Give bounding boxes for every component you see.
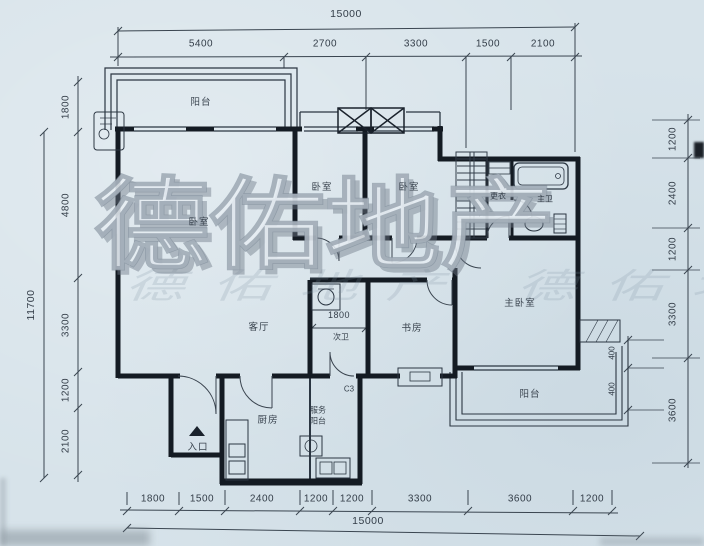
dim-bottom-seg-2: 2400 — [250, 494, 274, 505]
room-label-bedroom-b: 卧室 — [398, 179, 419, 193]
dim-bottom-seg-3: 1200 — [304, 494, 328, 505]
room-label-service-balcony-2: 阳台 — [310, 416, 326, 427]
dim-top-total: 15000 — [330, 8, 362, 20]
dim-bottom-seg-4: 1200 — [340, 494, 364, 505]
room-label-bedroom-a: 卧室 — [311, 179, 332, 193]
labels-layer: 阳台 卧室 卧室 卧室 更衣 主卫 客厅 次卫 书房 主卧室 厨房 服务 阳台 … — [0, 0, 704, 546]
window-code-label: C3 — [344, 385, 354, 394]
dim-right-seg-0: 1200 — [668, 127, 679, 151]
floor-plan-scan: 德佑地产 德佑地产 德佑地产 德佑地产 阳台 卧室 卧室 卧室 更衣 主卫 客厅… — [0, 0, 704, 546]
dim-left-seg-2: 3300 — [61, 313, 72, 337]
room-label-master-bath: 主卫 — [537, 194, 553, 205]
dim-balcony-side-1: 400 — [608, 382, 617, 395]
dim-left-seg-1: 4800 — [61, 193, 72, 217]
dim-top-seg-2: 3300 — [404, 39, 428, 50]
room-label-master-bedroom: 主卧室 — [504, 295, 536, 309]
dim-bottom-seg-0: 1800 — [141, 494, 165, 505]
dim-bottom-seg-6: 3600 — [508, 494, 532, 505]
dim-balcony-side-0: 400 — [608, 346, 617, 359]
dim-bottom-total: 15000 — [352, 515, 384, 527]
dim-right-seg-1: 2400 — [668, 181, 679, 205]
dim-top-seg-1: 2700 — [313, 39, 337, 50]
dim-top-seg-4: 2100 — [531, 39, 555, 50]
dim-right-seg-4: 3600 — [668, 398, 679, 422]
entrance-label: 入口 — [187, 439, 208, 453]
room-label-kitchen: 厨房 — [257, 412, 278, 426]
room-label-balcony-bottom: 阳台 — [519, 386, 540, 400]
room-label-bedroom-left: 卧室 — [188, 214, 209, 228]
dim-top-seg-3: 1500 — [476, 39, 500, 50]
dim-left-total: 11700 — [25, 290, 37, 321]
room-label-dressing: 更衣 — [490, 191, 506, 202]
dim-left-seg-0: 1800 — [61, 95, 72, 119]
dim-left-seg-3: 1200 — [61, 378, 72, 402]
room-label-service-balcony-1: 服务 — [310, 405, 326, 416]
dim-right-seg-3: 3300 — [668, 302, 679, 326]
room-label-living: 客厅 — [248, 319, 269, 333]
dim-top-seg-0: 5400 — [189, 39, 213, 50]
dim-bottom-seg-1: 1500 — [190, 494, 214, 505]
dim-right-seg-2: 1200 — [668, 237, 679, 261]
room-label-second-bath: 次卫 — [333, 332, 349, 343]
dim-inner-bath: 1800 — [328, 310, 350, 320]
dim-bottom-seg-7: 1200 — [580, 494, 604, 505]
dim-bottom-seg-5: 3300 — [408, 494, 432, 505]
room-label-study: 书房 — [401, 320, 422, 334]
dim-left-seg-4: 2100 — [61, 429, 72, 453]
room-label-balcony-top: 阳台 — [190, 94, 211, 108]
